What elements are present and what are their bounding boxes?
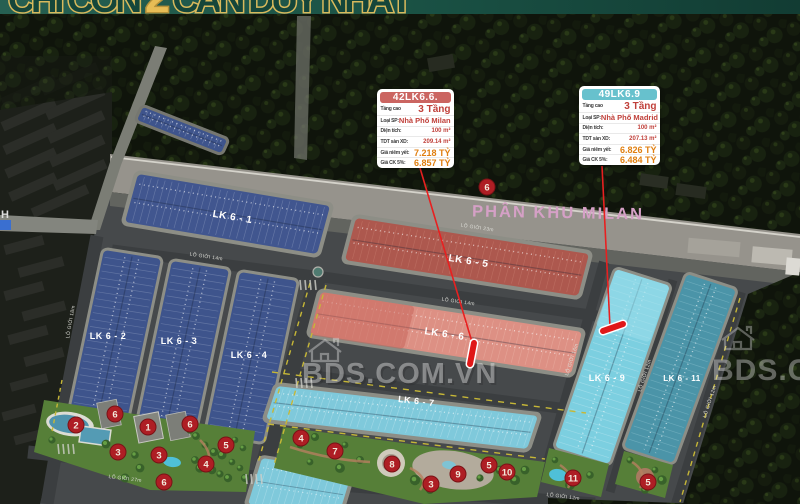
svg-text:5: 5: [645, 478, 651, 489]
svg-text:LK 6 - 11: LK 6 - 11: [663, 374, 700, 383]
svg-text:BDS.COM: BDS.COM: [712, 354, 800, 387]
svg-text:8: 8: [389, 460, 394, 471]
svg-text:9: 9: [455, 470, 460, 481]
svg-text:H: H: [1, 209, 9, 221]
svg-text:CHỈ CÒN 2 CĂN DUY NHẤT: CHỈ CÒN 2 CĂN DUY NHẤT: [8, 0, 413, 22]
svg-text:6: 6: [484, 183, 489, 194]
svg-text:1: 1: [145, 423, 151, 434]
svg-text:2: 2: [73, 421, 78, 432]
svg-text:10: 10: [502, 468, 513, 479]
svg-text:4: 4: [298, 434, 304, 445]
svg-text:5: 5: [486, 461, 492, 472]
svg-text:3: 3: [115, 448, 120, 459]
svg-text:6: 6: [112, 410, 117, 421]
svg-text:7: 7: [332, 447, 337, 458]
svg-text:5: 5: [223, 441, 229, 452]
svg-text:6: 6: [161, 478, 166, 489]
svg-text:6: 6: [187, 420, 192, 431]
svg-text:LK 6 - 3: LK 6 - 3: [161, 336, 198, 346]
svg-text:LK 6 - 4: LK 6 - 4: [231, 350, 268, 360]
svg-text:3: 3: [428, 480, 433, 491]
svg-text:PHÂN KHU MILAN: PHÂN KHU MILAN: [472, 202, 644, 224]
svg-text:LK 6 - 9: LK 6 - 9: [589, 373, 626, 383]
svg-text:LK 6 - 2: LK 6 - 2: [90, 331, 127, 341]
svg-text:11: 11: [568, 474, 579, 485]
svg-text:3: 3: [156, 451, 161, 462]
svg-text:4: 4: [203, 460, 209, 471]
